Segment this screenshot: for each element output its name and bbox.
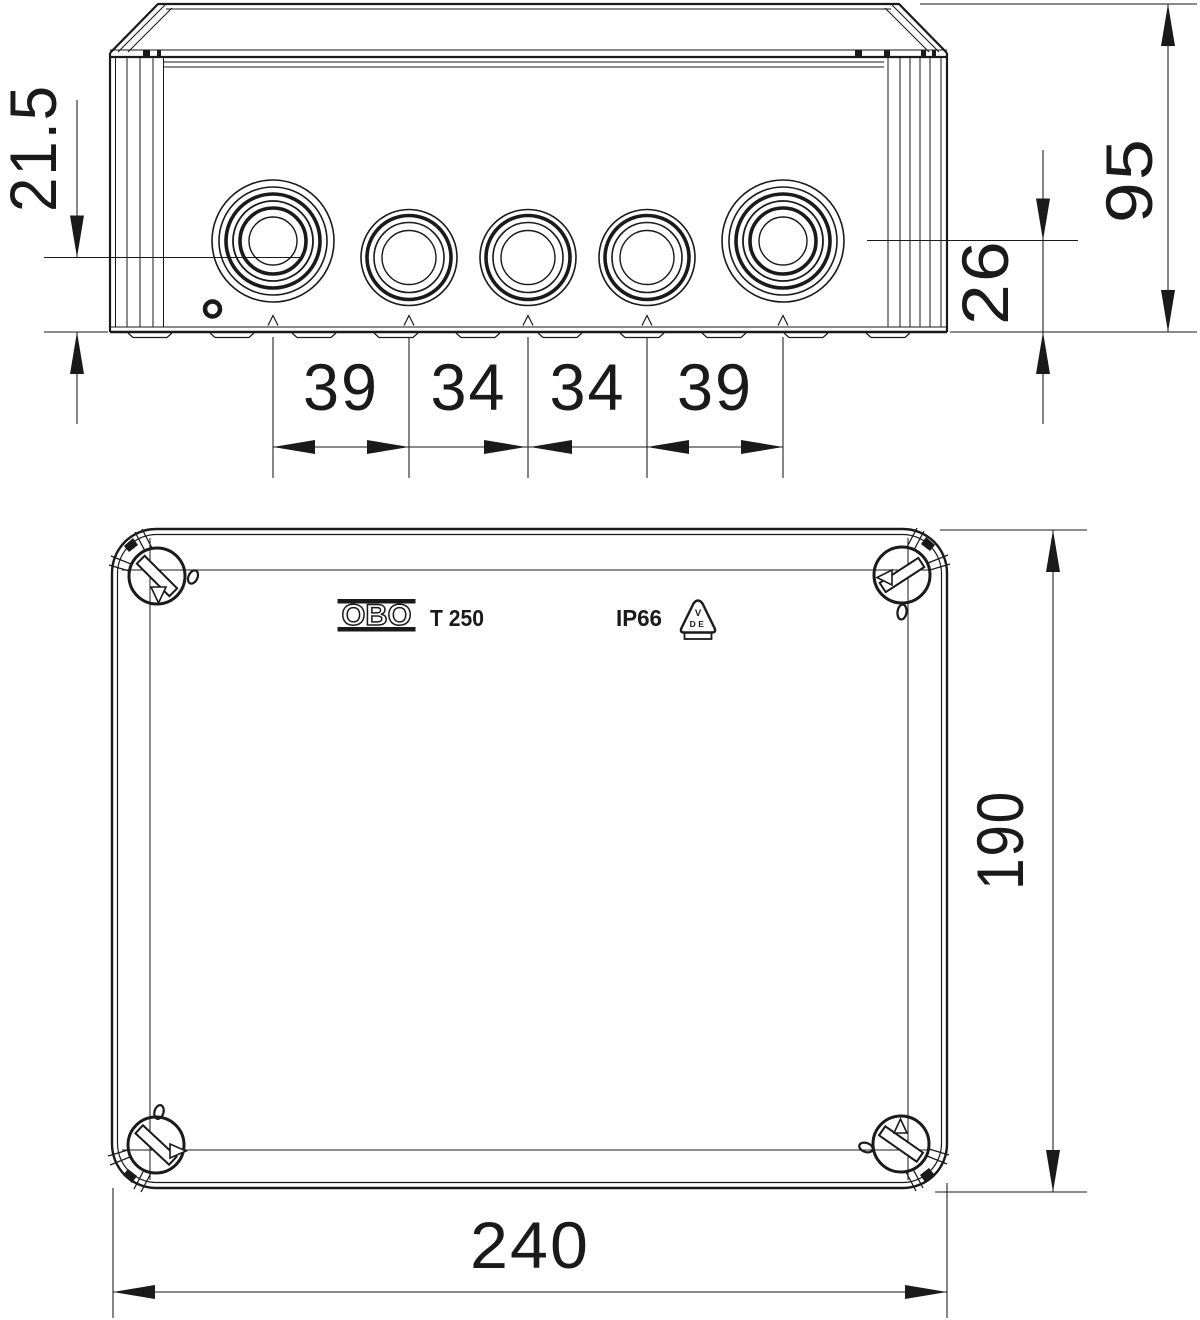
corner-screw-br: [858, 1116, 929, 1172]
obo-logo: OBO: [338, 599, 416, 632]
vde-letter-de: DE: [690, 619, 707, 629]
top-view: OBO T 250 IP66 V DE: [108, 528, 950, 1192]
entry-center-ticks: [268, 316, 788, 326]
corner-screw-tr: [874, 547, 930, 620]
mold-mark-tr: [897, 604, 908, 620]
mold-mark-tl: [186, 569, 200, 585]
dim-label-lid-depth: 190: [963, 790, 1037, 890]
dim-label-spacing-4: 39: [677, 350, 753, 424]
dim-label-spacing-1: 39: [303, 350, 379, 424]
cable-entry-large-2: [722, 180, 844, 302]
dim-label-lid-width: 240: [470, 1208, 590, 1282]
vde-mark: V DE: [681, 601, 715, 640]
arrowheads: [113, 530, 1060, 1299]
box-body: [110, 53, 947, 338]
lid-outline: [110, 4, 947, 57]
vde-letter-v: V: [695, 608, 702, 619]
obo-logo-text: OBO: [342, 599, 412, 632]
side-view-dimensions: 39 34 34 39 21.5 95 26: [0, 4, 1197, 478]
corner-screw-bl: [128, 1104, 186, 1173]
cable-entry-small-1: [361, 210, 457, 306]
dim-label-spacing-3: 34: [550, 350, 626, 424]
lid-inner-contour: [122, 538, 930, 1180]
ip-rating-text: IP66: [616, 605, 662, 631]
front-grommet-hole: [205, 302, 220, 317]
side-view: [110, 4, 947, 338]
model-text: T 250: [430, 605, 484, 631]
dim-label-large-entry-height: 26: [948, 239, 1022, 325]
bottom-feet: [128, 333, 910, 338]
junction-box-technical-drawing: 39 34 34 39 21.5 95 26: [0, 0, 1200, 1320]
corner-screw-tl: [129, 548, 200, 604]
dim-label-spacing-2: 34: [431, 350, 507, 424]
cable-entry-small-3: [599, 210, 695, 306]
dim-label-small-entry-height: 21.5: [0, 84, 70, 212]
dim-label-box-height: 95: [1092, 137, 1166, 223]
lid-outer-outline: [112, 529, 947, 1188]
lid-inner-outline: [118, 535, 942, 1183]
cable-entry-small-2: [480, 210, 576, 306]
drawing-canvas: 39 34 34 39 21.5 95 26: [0, 0, 1200, 1320]
cable-entry-large-1: [212, 180, 334, 302]
lid-markings: OBO T 250 IP66 V DE: [338, 599, 716, 639]
lid-latch-marks: [143, 51, 936, 57]
